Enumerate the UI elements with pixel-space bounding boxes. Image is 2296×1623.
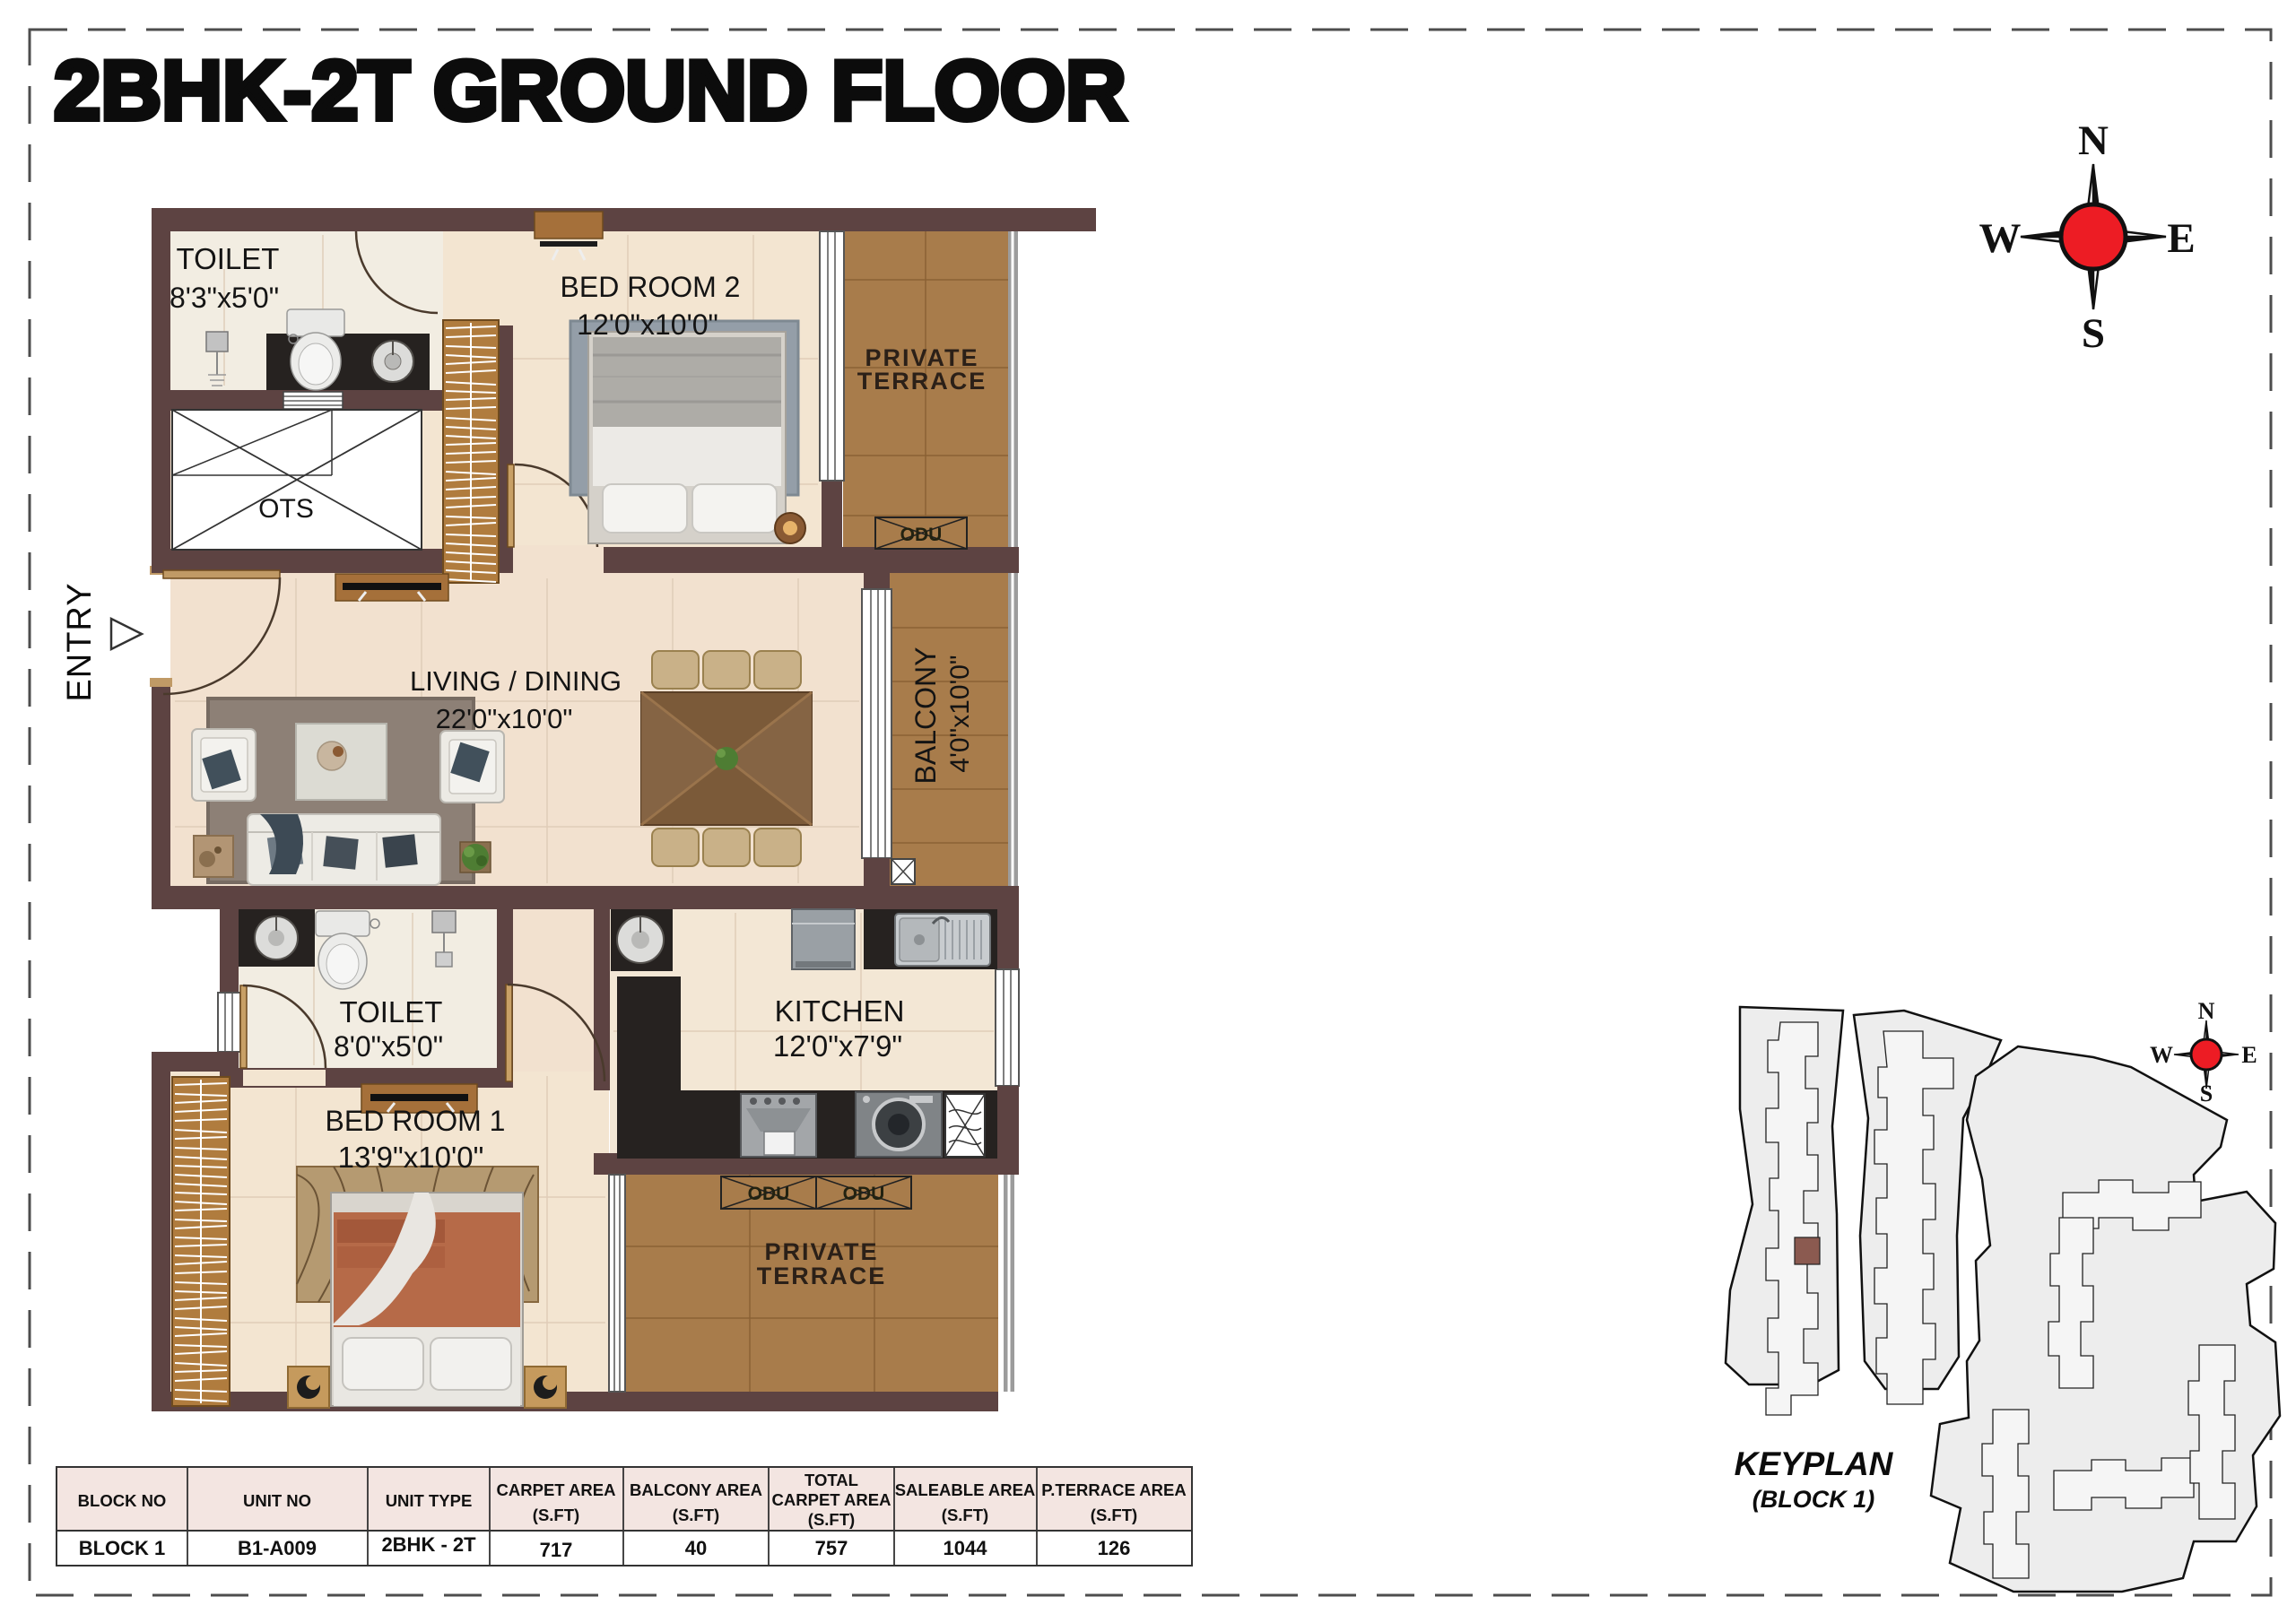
svg-text:CARPET AREA: CARPET AREA — [497, 1480, 616, 1499]
svg-text:TOTAL: TOTAL — [804, 1471, 858, 1489]
svg-text:126: 126 — [1098, 1537, 1131, 1559]
svg-text:KEYPLAN: KEYPLAN — [1735, 1445, 1894, 1482]
svg-text:BED ROOM 2: BED ROOM 2 — [561, 271, 741, 303]
svg-text:BLOCK NO: BLOCK NO — [78, 1491, 167, 1510]
svg-text:UNIT NO: UNIT NO — [243, 1491, 311, 1510]
svg-text:W: W — [1979, 215, 2022, 262]
svg-text:TERRACE: TERRACE — [857, 368, 987, 395]
svg-text:N: N — [2078, 117, 2109, 164]
svg-text:N: N — [2198, 998, 2215, 1024]
svg-text:8'3"x5'0": 8'3"x5'0" — [170, 282, 279, 314]
svg-text:40: 40 — [685, 1537, 707, 1559]
svg-text:SALEABLE AREA: SALEABLE AREA — [895, 1480, 1036, 1499]
svg-text:2BHK-2T GROUND FLOOR: 2BHK-2T GROUND FLOOR — [54, 43, 1126, 137]
svg-text:(S.FT): (S.FT) — [673, 1506, 719, 1524]
svg-text:LIVING / DINING: LIVING / DINING — [410, 665, 622, 697]
svg-text:KITCHEN: KITCHEN — [775, 994, 905, 1028]
svg-text:B1-A009: B1-A009 — [238, 1537, 317, 1559]
svg-text:W: W — [2150, 1042, 2173, 1068]
svg-text:2BHK - 2T: 2BHK - 2T — [381, 1533, 476, 1556]
svg-text:12'0"x7'9": 12'0"x7'9" — [773, 1029, 902, 1063]
svg-text:PRIVATE: PRIVATE — [764, 1238, 878, 1265]
svg-text:(S.FT): (S.FT) — [942, 1506, 988, 1524]
svg-text:E: E — [2167, 215, 2195, 262]
svg-text:(BLOCK 1): (BLOCK 1) — [1752, 1486, 1875, 1513]
svg-text:CARPET AREA: CARPET AREA — [772, 1490, 891, 1509]
svg-text:UNIT TYPE: UNIT TYPE — [386, 1491, 473, 1510]
svg-text:8'0"x5'0": 8'0"x5'0" — [334, 1030, 443, 1063]
svg-text:P.TERRACE AREA: P.TERRACE AREA — [1041, 1480, 1186, 1499]
svg-text:(S.FT): (S.FT) — [533, 1506, 579, 1524]
svg-text:ODU: ODU — [843, 1184, 885, 1204]
svg-text:TOILET: TOILET — [340, 995, 443, 1028]
svg-text:ENTRY: ENTRY — [61, 582, 99, 701]
svg-text:13'9"x10'0": 13'9"x10'0" — [338, 1141, 484, 1174]
svg-text:OTS: OTS — [258, 494, 314, 524]
svg-text:(S.FT): (S.FT) — [1091, 1506, 1137, 1524]
svg-text:ODU: ODU — [900, 525, 943, 545]
svg-text:1044: 1044 — [944, 1537, 988, 1559]
svg-text:4'0"x10'0": 4'0"x10'0" — [945, 655, 975, 772]
svg-text:E: E — [2241, 1042, 2257, 1068]
svg-text:S: S — [2082, 310, 2105, 357]
svg-text:ODU: ODU — [748, 1184, 790, 1204]
svg-text:BALCONY: BALCONY — [909, 647, 942, 785]
svg-text:22'0"x10'0": 22'0"x10'0" — [436, 703, 573, 734]
svg-text:(S.FT): (S.FT) — [808, 1510, 855, 1529]
svg-text:757: 757 — [815, 1537, 848, 1559]
svg-text:TERRACE: TERRACE — [757, 1263, 887, 1289]
svg-text:S: S — [2200, 1081, 2213, 1107]
svg-text:TOILET: TOILET — [177, 242, 280, 275]
svg-text:BED ROOM 1: BED ROOM 1 — [326, 1105, 506, 1137]
svg-text:12'0"x10'0": 12'0"x10'0" — [577, 308, 718, 341]
svg-text:717: 717 — [540, 1539, 573, 1561]
svg-text:BLOCK 1: BLOCK 1 — [79, 1537, 166, 1559]
svg-text:BALCONY AREA: BALCONY AREA — [630, 1480, 762, 1499]
